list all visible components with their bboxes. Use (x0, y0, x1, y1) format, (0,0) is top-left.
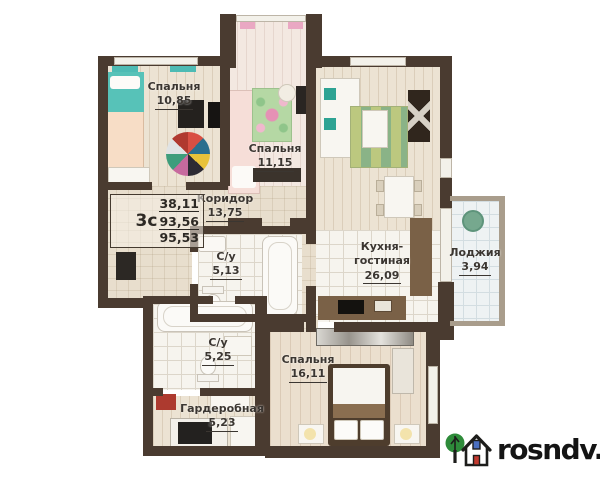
room-label-wardrobe: Гардеробная 5,23 (180, 402, 264, 432)
cooktop (338, 300, 364, 314)
floor-lamp (278, 84, 296, 102)
pillow (334, 420, 358, 440)
spec-value: 93,56 (159, 215, 199, 230)
apartment-type: 3с (136, 212, 158, 231)
window (440, 158, 452, 178)
room-label-corridor: Коридор 13,75 (195, 192, 255, 222)
wall-segment (306, 66, 316, 228)
dining-table (384, 176, 414, 218)
room-name: Лоджия (449, 246, 500, 260)
wall-segment (334, 322, 438, 332)
storage-box (156, 394, 176, 410)
room-area: 5,13 (210, 264, 241, 279)
wall-segment (220, 14, 236, 68)
spec-value: 38,11 (159, 197, 199, 212)
curtain (240, 21, 255, 29)
bathtub-inner (268, 242, 292, 310)
apartment-spec-box: 38,11 3с 93,56 95,53 (110, 194, 204, 248)
loggia-wall (450, 321, 502, 326)
lamp (304, 428, 316, 440)
room-name: Коридор (197, 192, 253, 206)
room-label-bedroom2: Спальня 11,15 (245, 142, 305, 172)
room-area: 16,11 (289, 367, 328, 382)
tv-cabinet (408, 90, 430, 142)
wall-segment (98, 298, 148, 308)
wall-segment (438, 282, 454, 340)
pillow (360, 420, 384, 440)
wall-segment (186, 182, 228, 190)
chair (376, 204, 384, 216)
room-name: С/у (208, 336, 227, 350)
room-label-bathroom2: С/у 5,25 (196, 336, 240, 366)
spec-value: 95,53 (159, 231, 199, 245)
wall-segment (98, 182, 152, 190)
wall-segment (143, 446, 269, 456)
wall-segment (220, 66, 230, 186)
window (114, 57, 198, 65)
wall-segment (143, 388, 163, 396)
wall-segment (190, 226, 306, 234)
chair (414, 204, 422, 216)
window (236, 15, 306, 22)
room-area: 5,25 (202, 350, 233, 365)
round-rug (166, 132, 210, 176)
wall-segment (306, 286, 316, 332)
room-area: 13,75 (206, 206, 245, 221)
loggia-wall (450, 196, 502, 201)
spec-living-area: 38,11 (115, 197, 199, 212)
wall-segment (190, 314, 308, 322)
wall-segment (265, 446, 440, 458)
room-area: 5,23 (206, 416, 237, 431)
shoe-cabinet (116, 252, 136, 280)
house-with-tree-icon (444, 427, 492, 471)
toilet-tank (202, 286, 224, 294)
room-area: 3,94 (459, 260, 490, 275)
kitchen-sink (374, 300, 392, 312)
room-name: Спальня (148, 80, 201, 94)
wall-segment (306, 228, 316, 244)
chair (376, 180, 384, 192)
wall-segment (143, 298, 153, 450)
room-name: Спальня (282, 353, 335, 367)
wall-segment (143, 296, 213, 304)
wall-segment (290, 218, 316, 226)
room-area: 26,09 (363, 269, 402, 284)
room-label-kitchen-living: Кухня-гостиная 26,09 (334, 240, 430, 284)
spec-area: 3с 93,56 (115, 212, 199, 231)
spec-total-area: 95,53 (115, 231, 199, 245)
shelf (392, 348, 414, 394)
room-label-loggia: Лоджия 3,94 (448, 246, 502, 276)
plant (462, 210, 484, 232)
room-label-bedroom3: Спальня 16,11 (277, 353, 339, 383)
pillow (110, 76, 140, 89)
coffee-table (362, 110, 388, 148)
room-name: С/у (216, 250, 235, 264)
toilet-tank (197, 374, 219, 382)
window (350, 57, 406, 66)
wall-segment (440, 56, 452, 158)
room-name: Кухня-гостиная (334, 240, 430, 269)
room-label-bathroom1: С/у 5,13 (204, 250, 248, 280)
room-label-bedroom1: Спальня 10,85 (144, 80, 204, 110)
watermark-text: rosndv.ru (497, 433, 600, 466)
bed-runner (333, 404, 385, 418)
sofa-pillow (324, 88, 336, 100)
bed-blanket (333, 368, 385, 404)
room-area: 11,15 (256, 156, 295, 171)
room-area: 10,85 (155, 94, 194, 109)
sofa-pillow (324, 118, 336, 130)
room-name: Спальня (249, 142, 302, 156)
window (428, 366, 438, 424)
wall-segment (440, 178, 452, 208)
wall-segment (200, 388, 267, 396)
curtain (288, 21, 303, 29)
room-name: Гардеробная (180, 402, 264, 416)
watermark-link[interactable]: rosndv.ru (444, 427, 600, 471)
floor-plan: Спальня 10,85 Спальня 11,15 Кухня-гостин… (0, 0, 600, 480)
lamp (400, 428, 412, 440)
chair (414, 180, 422, 192)
